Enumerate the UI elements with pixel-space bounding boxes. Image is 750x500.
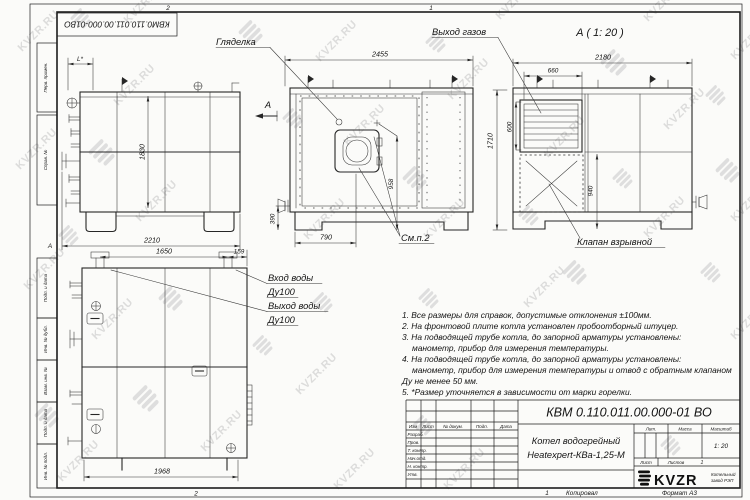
rear-right-flange bbox=[692, 195, 707, 209]
row-prov: Пров. bbox=[408, 440, 420, 445]
note-line: Ду не менее 50 мм. bbox=[401, 376, 478, 386]
zone-mark-top-left: 2 bbox=[165, 5, 170, 12]
note-line: 2. На фронтовой плите котла установлен п… bbox=[401, 321, 678, 331]
margin-label: Подп. и дата bbox=[43, 408, 48, 437]
watermark-text: KVZR.RU bbox=[332, 446, 378, 492]
col-data: Дата bbox=[499, 424, 512, 429]
dim-2210: 2210 bbox=[143, 236, 160, 245]
dim-2455: 2455 bbox=[371, 50, 389, 59]
dim-940: 940 bbox=[588, 185, 595, 196]
watermark-text: KVZR.RU bbox=[199, 408, 245, 454]
watermark-text: KVZR.RU bbox=[16, 8, 62, 54]
title-doc-number: КВМ 0.110.011.00.000-01 ВО bbox=[546, 406, 712, 420]
dim-1968: 1968 bbox=[154, 467, 170, 476]
col-doc: № докум. bbox=[443, 424, 463, 429]
watermark-text: KVZR.RU bbox=[294, 351, 340, 397]
product-name-1: Котел водогрейный bbox=[532, 436, 620, 446]
note-line: манометр, прибор для измерения температу… bbox=[412, 343, 609, 353]
footer-copied: Копировал bbox=[566, 490, 598, 497]
label-water-outlet-dn: Ду100 bbox=[267, 315, 296, 325]
sheet-label: Лист bbox=[639, 460, 652, 465]
sight-glass-circle bbox=[336, 119, 342, 125]
margin-label: Инв. № подл. bbox=[43, 452, 48, 480]
watermark-text: KVZR.RU bbox=[662, 86, 708, 132]
watermark-text: KVZR.RU bbox=[542, 114, 588, 160]
dim-1650: 1650 bbox=[156, 247, 172, 256]
watermark-text: KVZR.RU bbox=[314, 18, 360, 64]
watermark-text: KVZR.RU bbox=[112, 62, 158, 108]
water-pipe-outlet bbox=[91, 252, 109, 268]
margin-label: Инв. № дубл. bbox=[43, 325, 48, 353]
margin-label: Справ. № bbox=[43, 150, 48, 171]
dim-1830: 1830 bbox=[138, 144, 147, 160]
dim-790: 790 bbox=[320, 233, 332, 242]
note-line: 3. На подводящей трубе котла, до запорно… bbox=[402, 332, 681, 342]
technical-notes: 1. Все размеры для справок, допустимые о… bbox=[401, 310, 732, 397]
label-see-note: См.п.2 bbox=[401, 233, 430, 243]
dim-660: 660 bbox=[548, 68, 559, 75]
drawing-sheet: KVZR.RU KVZR.RU KVZR.RU KVZR.RU KVZR.RU … bbox=[0, 0, 750, 500]
dim-1710: 1710 bbox=[486, 133, 495, 149]
kvzr-coil-icon bbox=[638, 471, 651, 486]
logo-subtext-1: Котельный bbox=[711, 471, 736, 477]
plan-hinge-strip bbox=[247, 385, 252, 425]
col-izm: Изм bbox=[409, 424, 417, 429]
dim-390: 390 bbox=[270, 213, 277, 224]
watermark-text: KVZR.RU bbox=[90, 296, 136, 342]
dim-958: 958 bbox=[388, 178, 395, 189]
row-nachotd: Нач.отд. bbox=[408, 456, 427, 461]
note-line: 1. Все размеры для справок, допустимые о… bbox=[402, 310, 652, 320]
rear-top-fittings bbox=[537, 75, 668, 88]
watermark-text: KVZR.RU bbox=[522, 264, 568, 310]
section-arrow-a: А bbox=[255, 100, 277, 121]
scale-label: Масштаб bbox=[710, 427, 731, 432]
footer-format: Формат А3 bbox=[662, 490, 697, 497]
kvzr-logo: KVZR Котельный завод РЭП bbox=[638, 471, 736, 490]
mass-label: Масса bbox=[678, 427, 692, 432]
label-explosion-valve: Клапан взрывной bbox=[577, 237, 652, 247]
front-top-fittings bbox=[308, 75, 458, 88]
watermark-text: KVZR.RU bbox=[134, 178, 180, 224]
col-podp: Подп. bbox=[476, 424, 488, 429]
dim-159: 159 bbox=[234, 249, 245, 256]
plan-left-stubs bbox=[68, 281, 82, 445]
row-utv: Утв. bbox=[408, 472, 418, 477]
note-line: 4. На подводящей трубе котла, до запорно… bbox=[402, 354, 681, 364]
doc-number-top-box: КВМ0.110.011.00.000-01ВО bbox=[64, 20, 170, 30]
label-water-inlet: Вход воды bbox=[268, 273, 313, 283]
side-view: L* 1830 2210 А bbox=[62, 56, 277, 250]
note-line: манометр, прибор для измерения температу… bbox=[412, 365, 732, 375]
label-water-inlet-dn: Ду100 bbox=[267, 287, 296, 297]
zone-mark-bottom: 2 bbox=[193, 491, 198, 498]
drawing-canvas: KVZR.RU KVZR.RU KVZR.RU KVZR.RU KVZR.RU … bbox=[0, 0, 750, 500]
section-letter-a: А bbox=[264, 100, 271, 110]
label-view-a: А ( 1: 20 ) bbox=[575, 27, 623, 39]
watermark-text: KVZR.RU bbox=[442, 446, 488, 492]
col-list: Лист bbox=[421, 424, 434, 429]
sheets-label: Листов bbox=[667, 460, 685, 465]
note-line: 5. *Размер уточняется в зависимости от м… bbox=[402, 387, 632, 397]
margin-label: Подп. и дата bbox=[43, 273, 48, 302]
dim-2180: 2180 bbox=[594, 53, 611, 62]
side-left-stubs bbox=[62, 115, 80, 208]
label-sight-glass: Гляделка bbox=[216, 37, 256, 47]
logo-text: KVZR bbox=[654, 473, 697, 489]
zone-mark-left: А bbox=[47, 243, 52, 250]
footer-copy-num: 1 bbox=[545, 490, 549, 497]
watermark-text: KVZR.RU bbox=[494, 0, 540, 22]
watermark-text: KVZR.RU bbox=[642, 194, 688, 240]
sheets-value: 1 bbox=[701, 460, 704, 466]
row-razrab: Разраб. bbox=[408, 432, 424, 437]
product-name-2: Heatexpert-КВа-1,25-М bbox=[527, 450, 625, 460]
dim-l-star: L* bbox=[77, 56, 84, 63]
zone-mark-top-right: 1 bbox=[429, 5, 433, 12]
front-view: 2455 958 390 790 1710 Гляделка См.п.2 bbox=[216, 37, 507, 247]
row-nkontr: Н. контр. bbox=[408, 464, 428, 469]
row-tkontr: Т. контр. bbox=[408, 448, 427, 453]
logo-subtext-2: завод РЭП bbox=[710, 478, 734, 483]
margin-label: Перв. примен. bbox=[43, 63, 48, 93]
margin-label: Взам. инв. № bbox=[43, 367, 48, 395]
label-water-outlet: Выход воды bbox=[268, 301, 320, 311]
label-gas-outlet: Выход газов bbox=[432, 27, 486, 37]
lit-label: Лит. bbox=[645, 427, 657, 432]
dim-600: 600 bbox=[507, 121, 514, 132]
scale-value: 1: 20 bbox=[714, 443, 729, 450]
explosion-valve bbox=[520, 155, 583, 212]
scale-section: Лит. Масса Масштаб 1: 20 Лист Листов 1 bbox=[634, 424, 740, 466]
